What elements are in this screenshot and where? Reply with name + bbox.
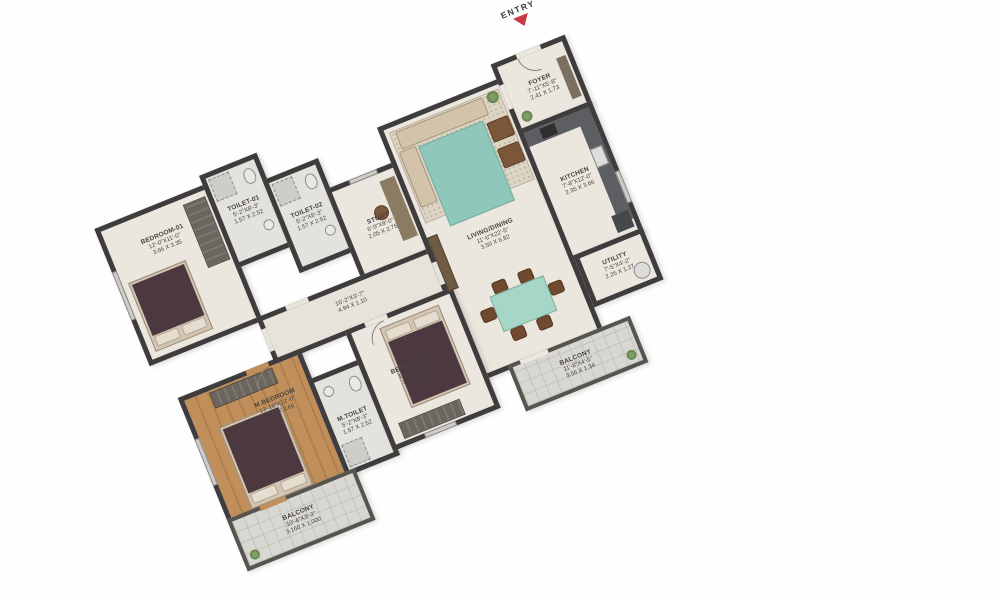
plant-icon — [520, 109, 534, 123]
door-opening — [285, 297, 309, 311]
window-icon — [349, 169, 379, 185]
entry-marker: ENTRY — [482, 0, 559, 40]
shower-icon — [208, 172, 237, 202]
toilet-wc-icon — [303, 172, 320, 191]
bed-icon — [128, 260, 213, 352]
floorplan-canvas: ENTRY BEDROOM-01 12'-0"X11'-0" 3.66 X 3.… — [0, 0, 1000, 600]
room-label-m-toilet: M.TOILET 5'-2"X8'-3" 1.57 X 2.52 — [329, 402, 382, 440]
sink-icon — [323, 223, 337, 237]
room-label-foyer: FOYER 7'-11"X5'-8" 2.41 X 1.73 — [506, 63, 579, 109]
window-icon — [195, 438, 218, 486]
shower-icon — [271, 176, 300, 206]
room-label-utility: UTILITY 7'-5"X4'-2" 2.26 X 1.27 — [583, 243, 651, 288]
shower-icon — [341, 437, 370, 467]
toilet-wc-icon — [241, 166, 258, 185]
sink-icon — [262, 218, 276, 232]
room-label-kitchen: KITCHEN 7'-8"X12'-0" 2.35 X 3.66 — [538, 157, 617, 206]
floor-plan: ENTRY BEDROOM-01 12'-0"X11'-0" 3.66 X 3.… — [91, 29, 710, 582]
